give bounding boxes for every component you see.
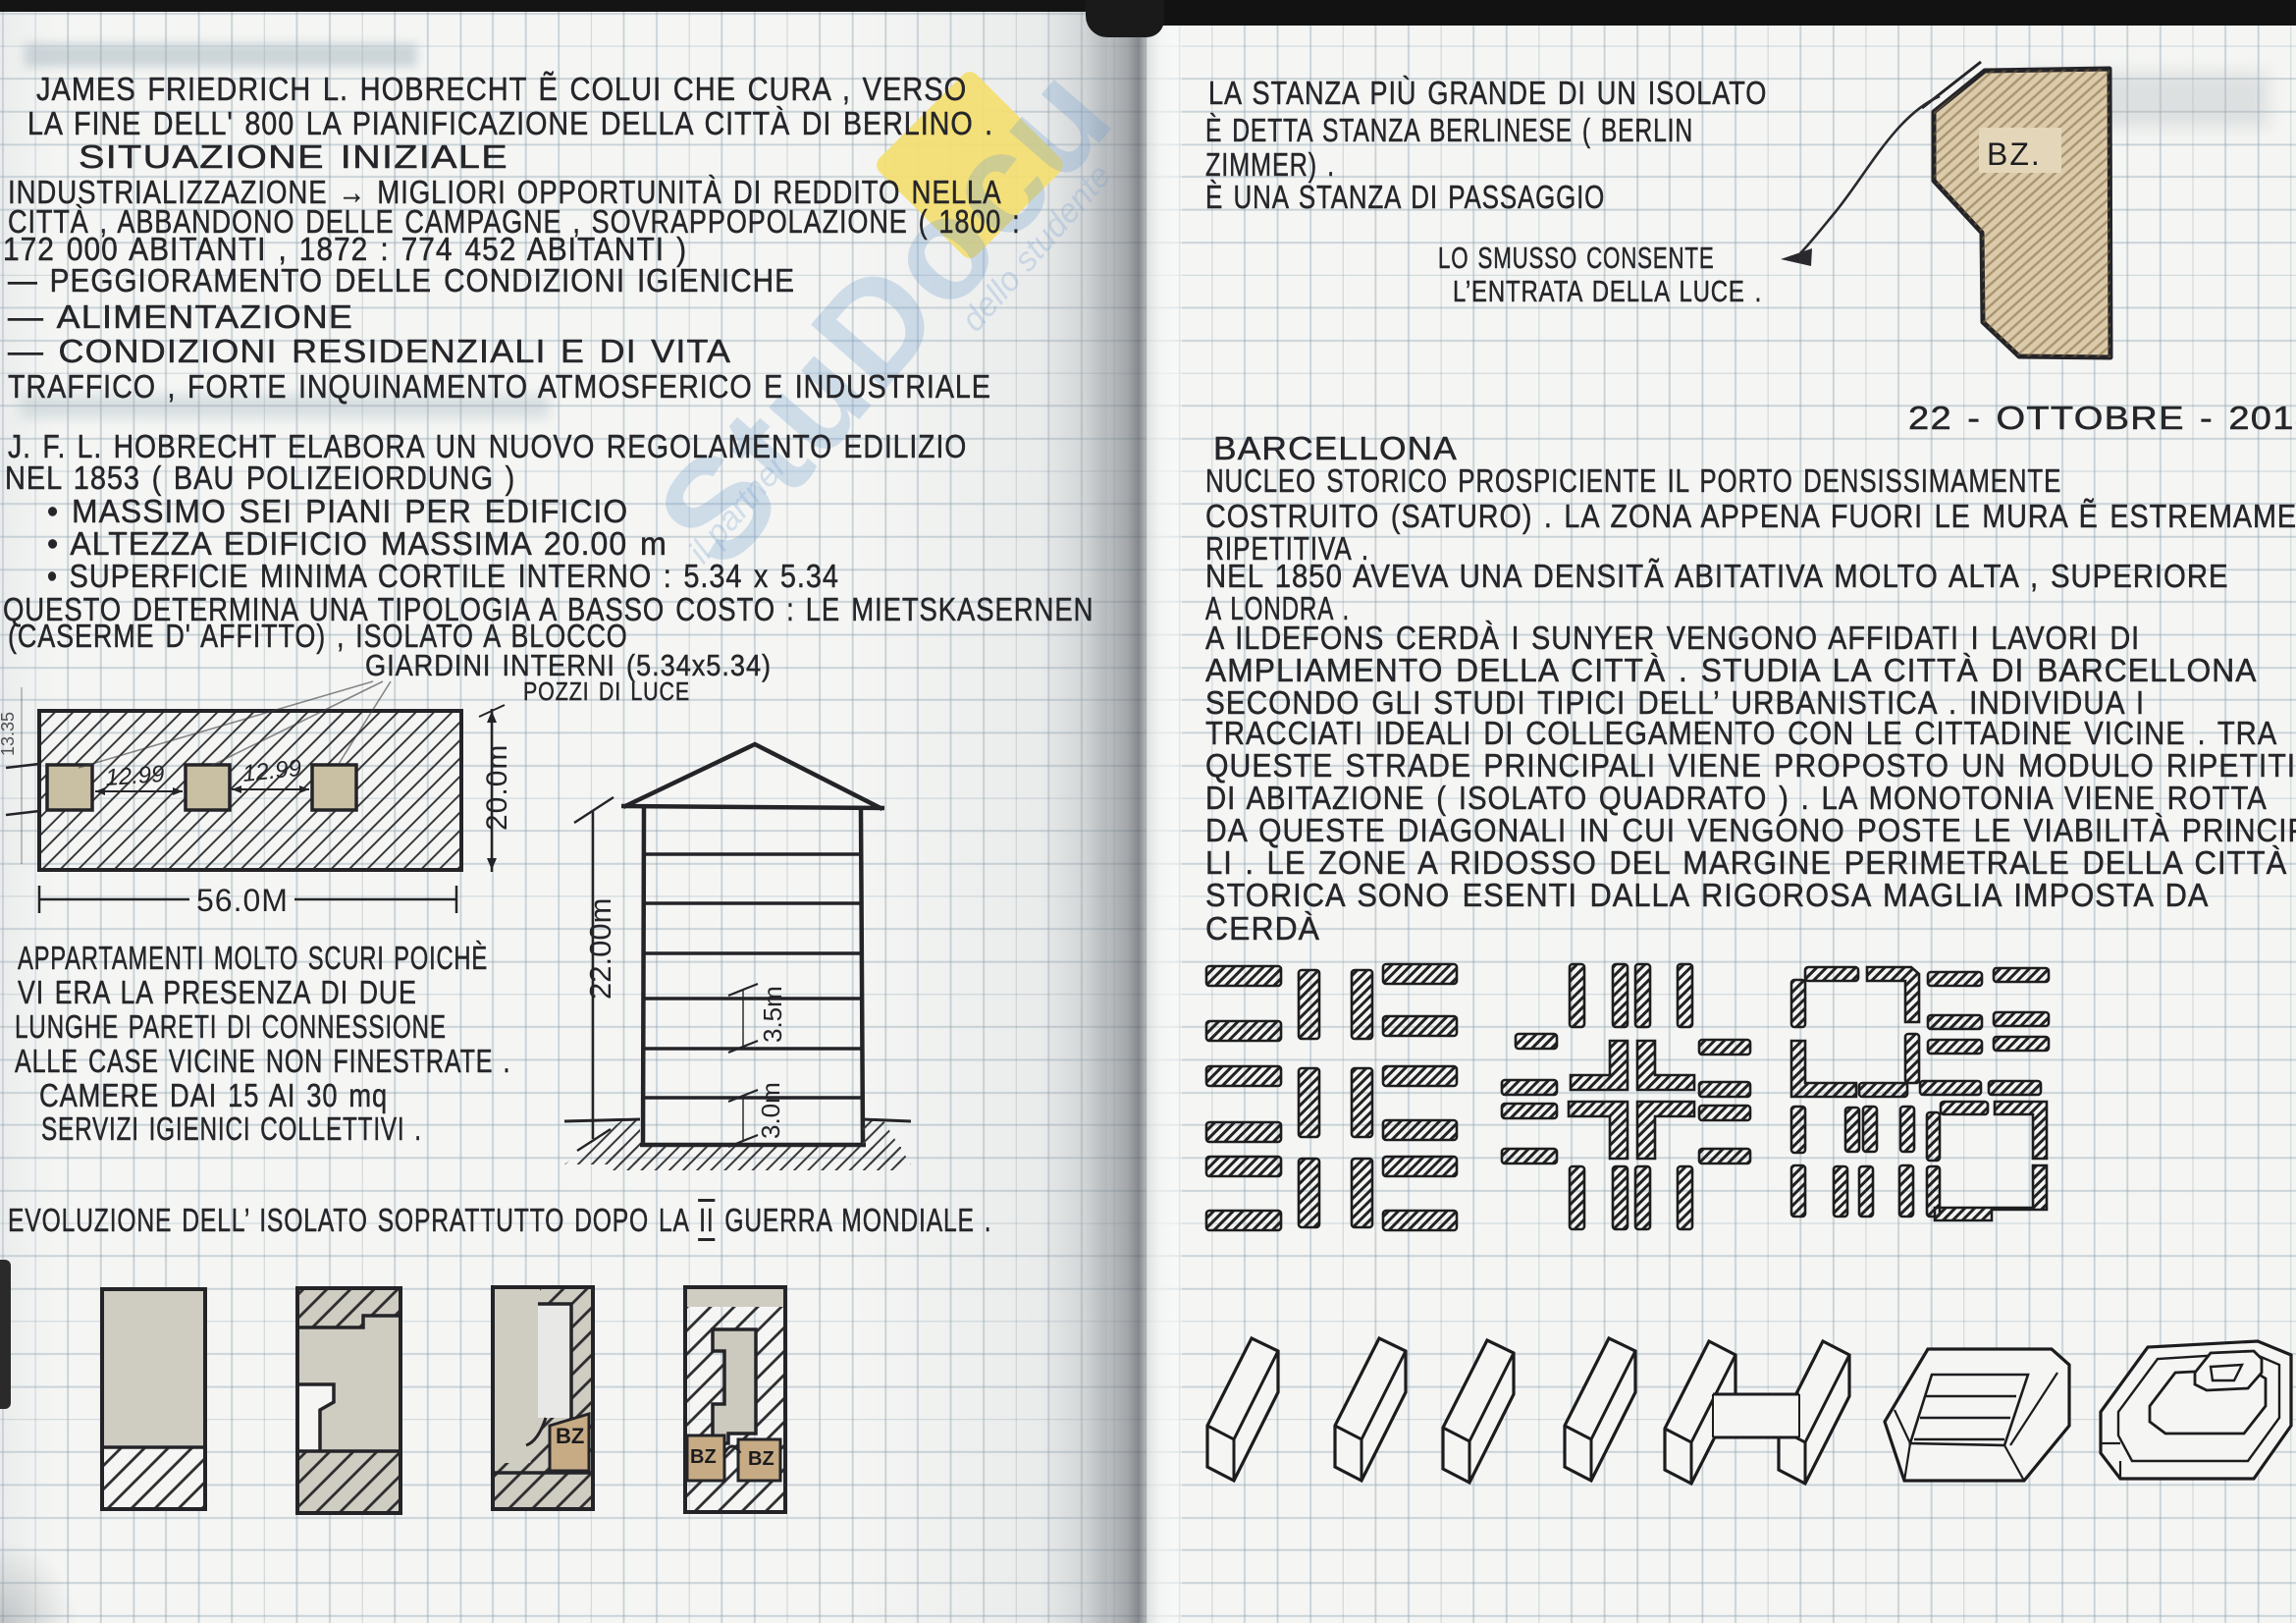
svg-text:13.35: 13.35 <box>0 712 18 756</box>
svg-text:56.0M: 56.0M <box>196 883 289 918</box>
svg-text:BZ: BZ <box>748 1448 774 1470</box>
svg-text:3.0m: 3.0m <box>756 1082 785 1139</box>
svg-text:BZ: BZ <box>556 1424 584 1448</box>
svg-text:BZ.: BZ. <box>1987 136 2042 172</box>
svg-text:3.5m: 3.5m <box>758 986 787 1043</box>
svg-text:22.00m: 22.00m <box>583 898 617 1000</box>
svg-text:BZ: BZ <box>690 1446 717 1468</box>
svg-text:20.0m: 20.0m <box>481 744 513 831</box>
svg-text:12.99: 12.99 <box>105 761 166 791</box>
